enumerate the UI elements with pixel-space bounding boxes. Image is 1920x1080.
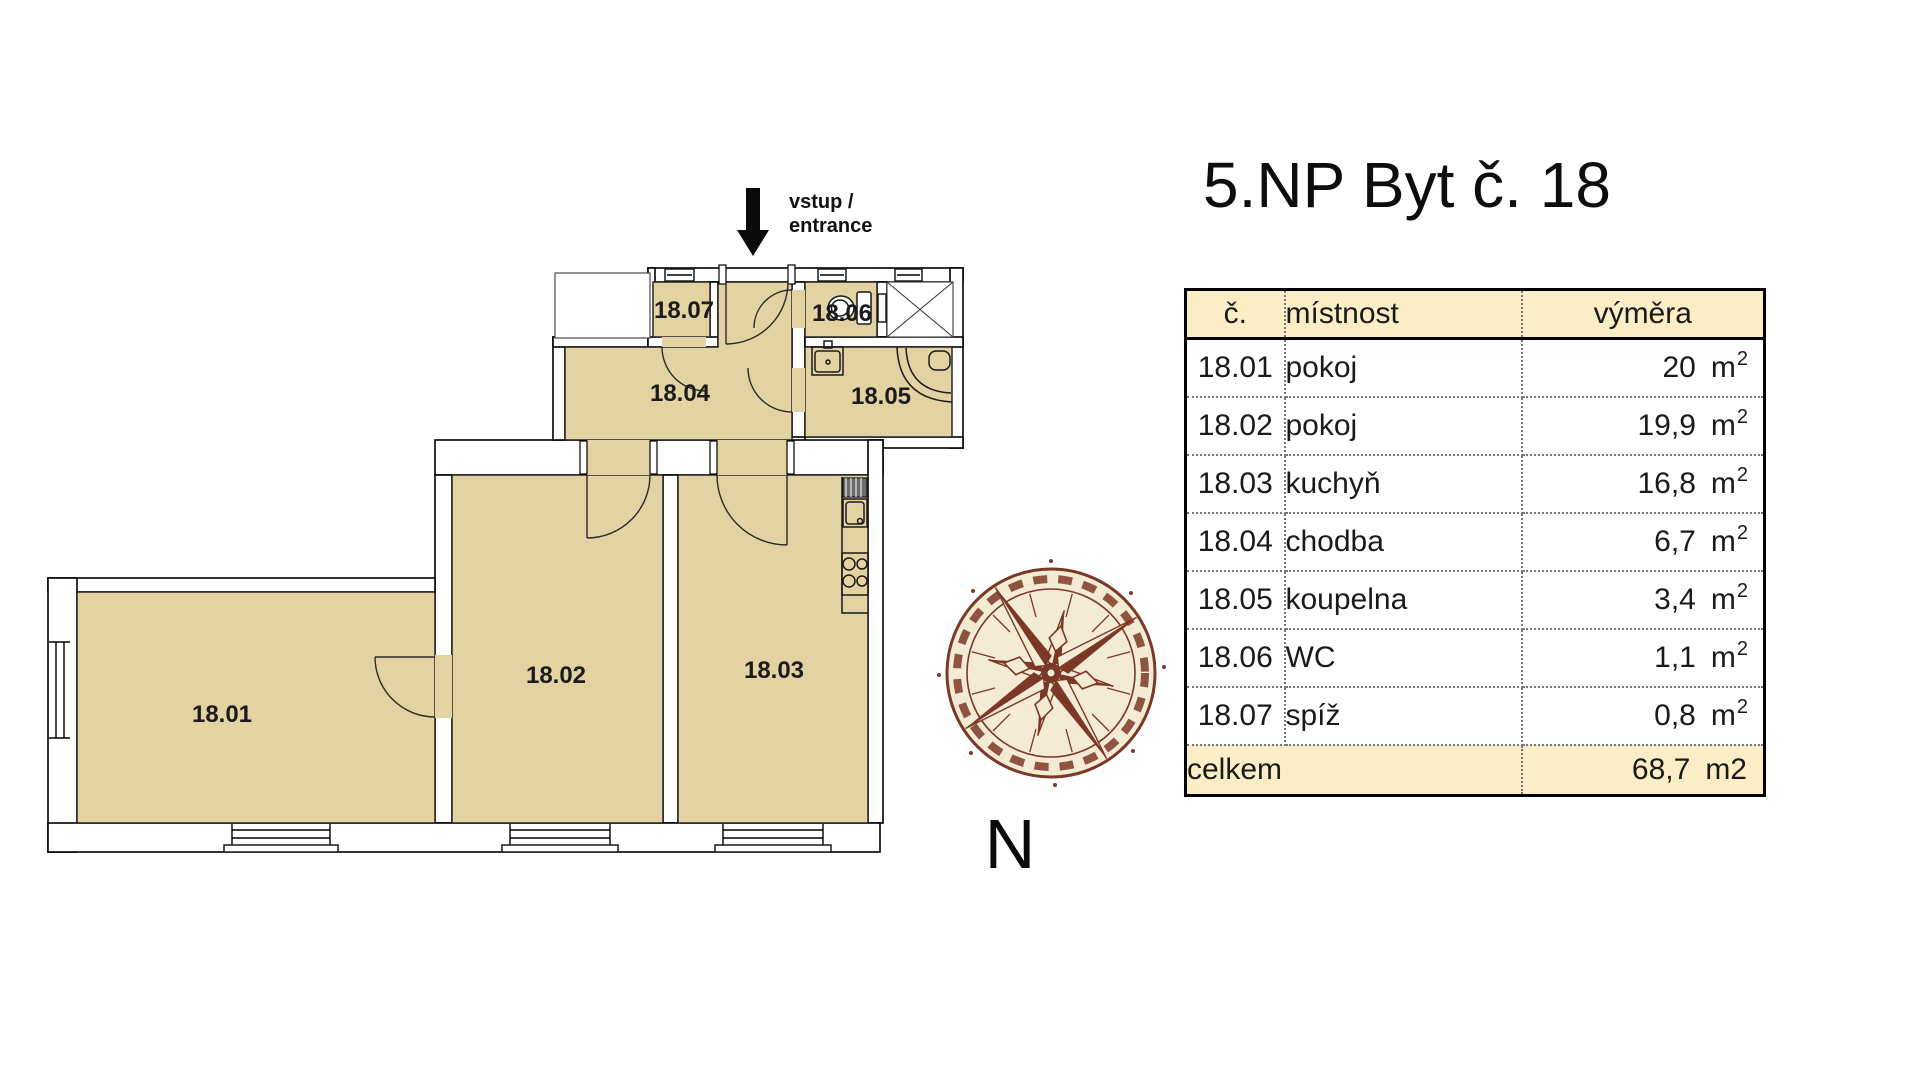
cell-room: kuchyň — [1285, 455, 1522, 513]
entrance-label-line2: entrance — [789, 214, 872, 238]
room-area-table: č. místnost výměra 18.01 pokoj 20m2 18.0… — [1184, 288, 1766, 797]
area-value: 0,8 — [1654, 699, 1696, 733]
room-label-18-01: 18.01 — [192, 701, 252, 728]
north-label: N — [985, 805, 1036, 883]
table-row: 18.02 pokoj 19,9m2 — [1186, 397, 1765, 455]
area-unit: m2 — [1711, 409, 1747, 443]
total-unit: m2 — [1705, 753, 1747, 787]
cell-area: 3,4m2 — [1522, 571, 1765, 629]
area-unit: m2 — [1711, 583, 1747, 617]
room-label-18-07: 18.07 — [654, 297, 714, 324]
door-jamb — [787, 441, 794, 474]
entrance-jamb — [788, 265, 795, 284]
total-value: 68,7 — [1632, 753, 1690, 787]
cell-room: WC — [1285, 629, 1522, 687]
header-room: místnost — [1285, 290, 1522, 339]
table-total-row: celkem 68,7m2 — [1186, 745, 1765, 796]
room-label-18-06: 18.06 — [812, 300, 872, 327]
cell-no: 18.07 — [1186, 687, 1285, 745]
cell-room: chodba — [1285, 513, 1522, 571]
table-row: 18.05 koupelna 3,4m2 — [1186, 571, 1765, 629]
table-row: 18.03 kuchyň 16,8m2 — [1186, 455, 1765, 513]
header-area: výměra — [1522, 290, 1765, 339]
cell-no: 18.01 — [1186, 339, 1285, 397]
window-icon-left — [49, 642, 76, 738]
cell-no: 18.05 — [1186, 571, 1285, 629]
entrance-jamb — [719, 265, 726, 284]
area-unit: m2 — [1711, 525, 1747, 559]
room-label-18-04: 18.04 — [650, 380, 711, 407]
area-value: 1,1 — [1654, 641, 1696, 675]
entrance-arrow-icon — [737, 188, 769, 256]
table-row: 18.04 chodba 6,7m2 — [1186, 513, 1765, 571]
area-unit: m2 — [1711, 467, 1747, 501]
table-row: 18.01 pokoj 20m2 — [1186, 339, 1765, 397]
compass-rose-icon — [880, 502, 1170, 844]
window-icons-bottom — [224, 824, 831, 852]
entrance-label: vstup / entrance — [789, 190, 872, 238]
table-header-row: č. místnost výměra — [1186, 290, 1765, 339]
floor-plan: 18.01 18.02 18.03 18.04 18.05 18.06 18.0… — [0, 0, 1170, 900]
cell-room: spíž — [1285, 687, 1522, 745]
room-18-03 — [678, 475, 868, 823]
area-value: 20 — [1663, 351, 1696, 385]
table-row: 18.07 spíž 0,8m2 — [1186, 687, 1765, 745]
area-value: 6,7 — [1654, 525, 1696, 559]
room-label-18-03: 18.03 — [744, 657, 804, 684]
area-value: 16,8 — [1637, 467, 1695, 501]
area-value: 3,4 — [1654, 583, 1696, 617]
cell-area: 1,1m2 — [1522, 629, 1765, 687]
door-jamb — [580, 441, 587, 474]
door-jamb — [710, 441, 717, 474]
cell-area: 16,8m2 — [1522, 455, 1765, 513]
cell-area: 20m2 — [1522, 339, 1765, 397]
door-jamb — [650, 441, 657, 474]
total-label: celkem — [1186, 745, 1522, 796]
total-area: 68,7m2 — [1522, 745, 1765, 796]
cell-no: 18.06 — [1186, 629, 1285, 687]
entrance-label-line1: vstup / — [789, 190, 872, 214]
cell-room: pokoj — [1285, 339, 1522, 397]
neighbor-area — [555, 273, 650, 338]
room-18-02 — [452, 475, 663, 823]
area-unit: m2 — [1711, 699, 1747, 733]
elevator-shaft — [887, 282, 953, 337]
cell-room: koupelna — [1285, 571, 1522, 629]
page: 18.01 18.02 18.03 18.04 18.05 18.06 18.0… — [0, 0, 1920, 1080]
room-label-18-02: 18.02 — [526, 662, 586, 689]
cell-area: 19,9m2 — [1522, 397, 1765, 455]
cell-no: 18.04 — [1186, 513, 1285, 571]
rooms — [77, 282, 952, 823]
area-unit: m2 — [1711, 641, 1747, 675]
table-row: 18.06 WC 1,1m2 — [1186, 629, 1765, 687]
cell-no: 18.03 — [1186, 455, 1285, 513]
cell-no: 18.02 — [1186, 397, 1285, 455]
page-title: 5.NP Byt č. 18 — [1203, 148, 1611, 222]
cell-area: 0,8m2 — [1522, 687, 1765, 745]
cell-area: 6,7m2 — [1522, 513, 1765, 571]
area-value: 19,9 — [1637, 409, 1695, 443]
room-18-01 — [77, 592, 435, 823]
area-unit: m2 — [1711, 351, 1747, 385]
header-no: č. — [1186, 290, 1285, 339]
room-label-18-05: 18.05 — [851, 383, 911, 410]
cell-room: pokoj — [1285, 397, 1522, 455]
